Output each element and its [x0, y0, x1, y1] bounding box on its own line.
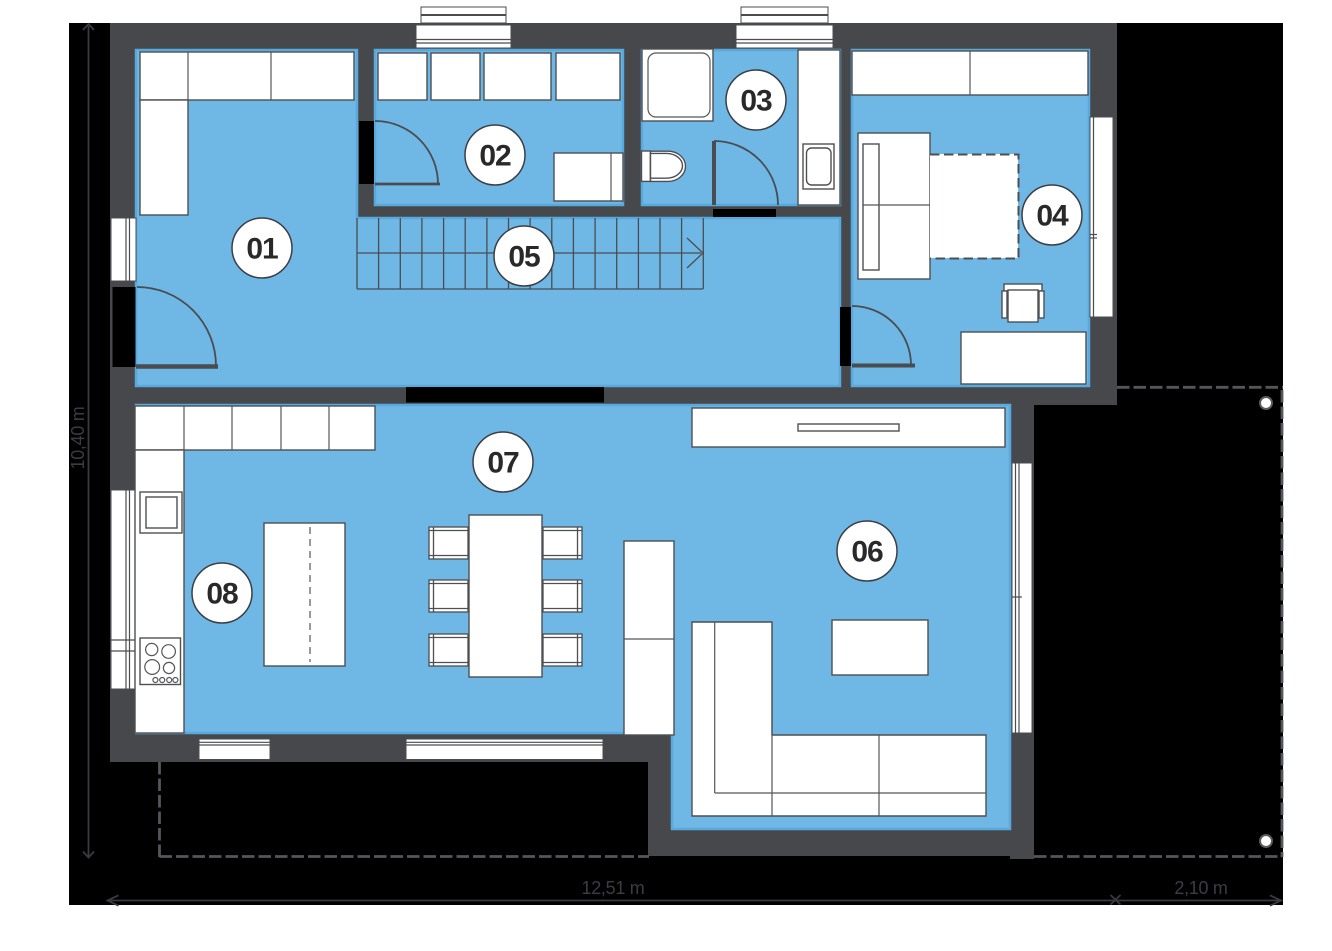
svg-text:10,40 m: 10,40 m [68, 407, 88, 470]
svg-text:08: 08 [206, 578, 238, 611]
svg-text:06: 06 [851, 536, 883, 569]
svg-text:2,10 m: 2,10 m [1174, 878, 1227, 898]
svg-text:01: 01 [246, 233, 278, 266]
svg-text:02: 02 [479, 140, 511, 173]
svg-text:12,51 m: 12,51 m [582, 878, 645, 898]
svg-text:07: 07 [487, 447, 519, 480]
svg-text:04: 04 [1036, 200, 1069, 233]
svg-text:03: 03 [740, 85, 772, 118]
svg-text:05: 05 [508, 241, 540, 274]
